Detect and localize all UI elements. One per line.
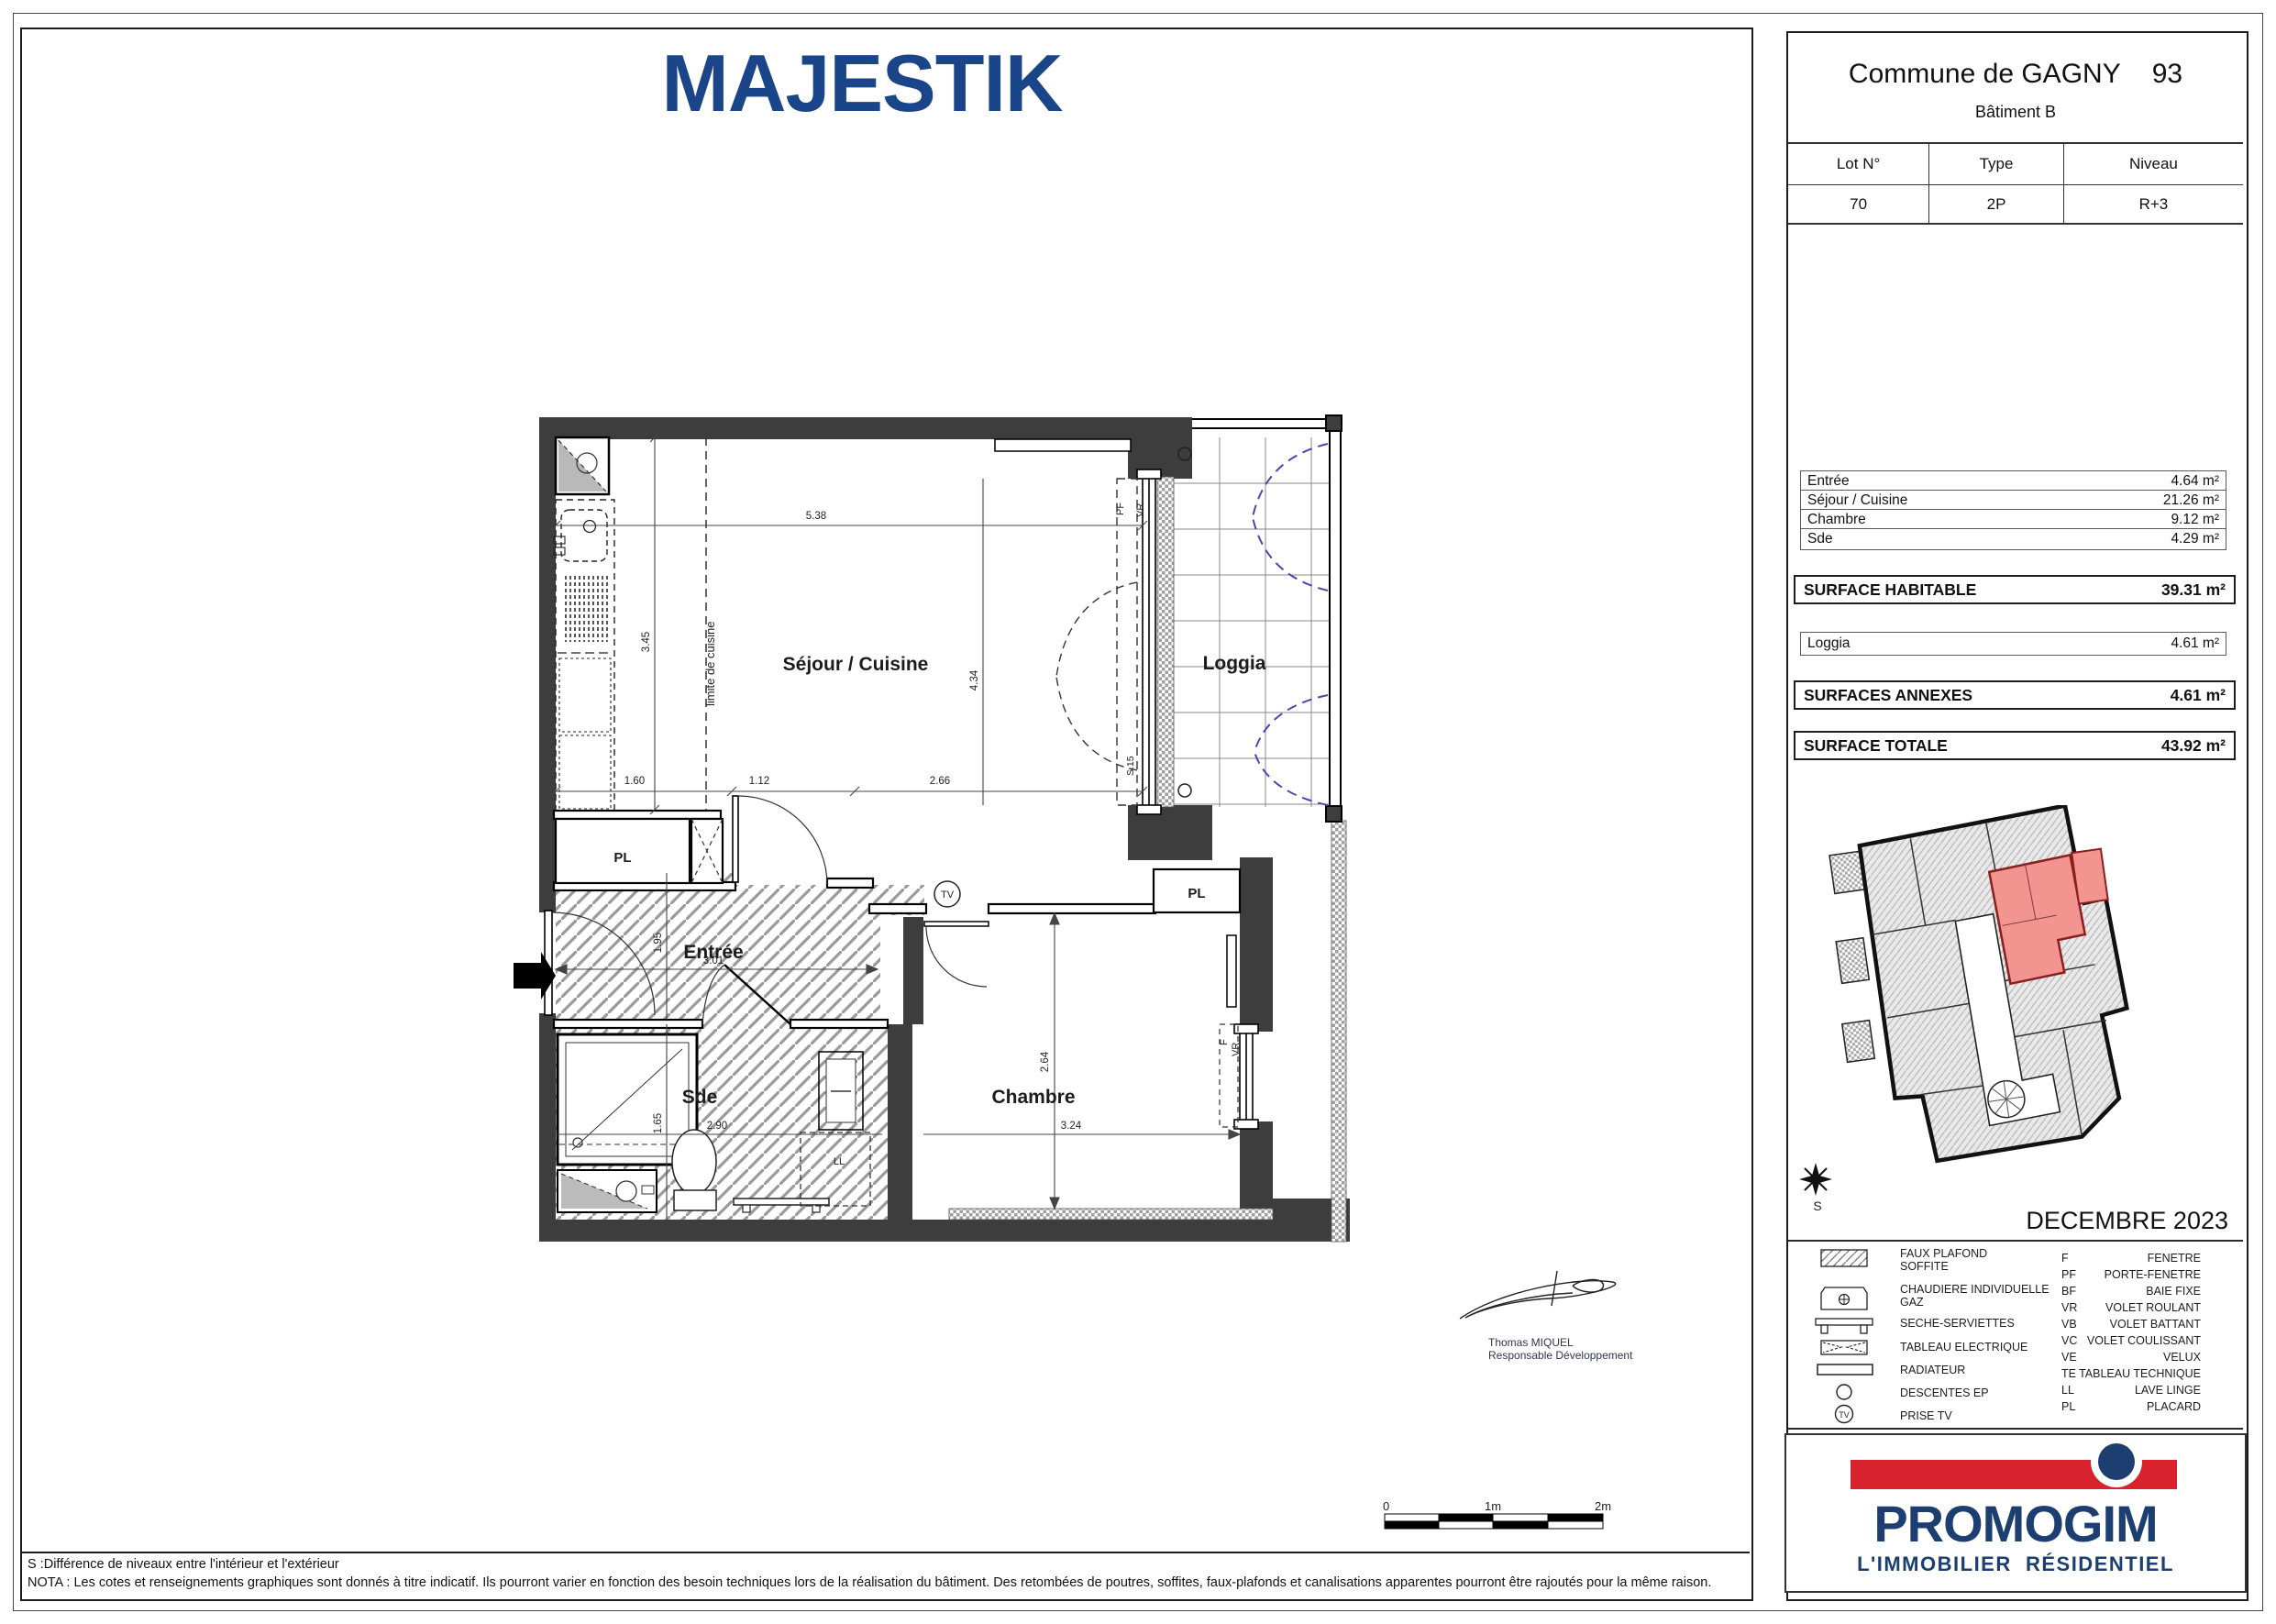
notes-box: S :Différence de niveaux entre l'intérie… xyxy=(20,1552,1750,1597)
dim-434: 4.34 xyxy=(969,669,980,690)
closet-label-pl-2: PL xyxy=(1188,886,1205,901)
room-label-entree: Entrée xyxy=(683,942,743,963)
surface-row-value: 21.26 m² xyxy=(2163,492,2226,509)
dim-538: 5.38 xyxy=(806,511,826,522)
vr-label: VR xyxy=(1135,503,1146,517)
surface-row-value: 4.64 m² xyxy=(2171,473,2226,490)
scale-segments xyxy=(1385,1514,1603,1529)
surface-row-value: 4.61 m² xyxy=(2171,635,2226,652)
surface-row-label: Séjour / Cuisine xyxy=(1801,492,1907,509)
commune-line: Commune de GAGNY 93 xyxy=(1788,59,2243,90)
radiator-sejour xyxy=(995,439,1131,451)
surfaces-annexes-box: SURFACES ANNEXES 4.61 m² xyxy=(1794,680,2236,710)
dim-112: 1.12 xyxy=(749,776,769,787)
f-label: F xyxy=(1219,1039,1230,1045)
dim-345: 3.45 xyxy=(641,632,652,652)
loggia-door-arcs xyxy=(1253,444,1328,805)
floor-plan-sheet: { "page": { "title": "MAJESTIK", "date":… xyxy=(0,0,2276,1624)
abbr-label: FENETRE xyxy=(2063,1252,2201,1265)
closet-label-pl: PL xyxy=(613,850,631,866)
kitchen-fixtures xyxy=(554,437,614,812)
svg-text:TV: TV xyxy=(941,889,955,900)
surface-row-loggia: Loggia 4.61 m² xyxy=(1800,632,2226,656)
brand-name: PROMOGIM xyxy=(1837,1494,2194,1553)
abbr-label: VOLET BATTANT xyxy=(2063,1318,2201,1331)
brand-box: PROMOGIM L'IMMOBILIER RÉSIDENTIEL xyxy=(1784,1433,2247,1593)
plan-date: DECEMBRE 2023 xyxy=(1926,1207,2228,1235)
legend-bottom-rule xyxy=(1788,1428,2243,1430)
vr-label-2: VR xyxy=(1231,1043,1242,1056)
dim-324: 3.24 xyxy=(1061,1121,1082,1132)
limite-cuisine-label: limite de cuisine xyxy=(703,622,717,707)
dim-290: 2.90 xyxy=(707,1121,727,1132)
surface-totale-value: 43.92 m² xyxy=(2161,736,2234,756)
legend-item-label: TABLEAU ELECTRIQUE xyxy=(1900,1341,2027,1353)
prise-tv-icon: TV xyxy=(934,881,960,907)
batiment: Bâtiment B xyxy=(1788,103,2243,122)
departement: 93 xyxy=(2152,59,2182,90)
legend-top-rule xyxy=(1788,1240,2243,1242)
signer-name: Thomas MIQUEL xyxy=(1488,1336,1574,1349)
tableau-electrique-legend-icon xyxy=(1821,1341,1867,1354)
surface-habitable-label: SURFACE HABITABLE xyxy=(1795,580,1976,600)
page-title: MAJESTIK xyxy=(514,37,1210,130)
lot-table: Lot N° Type Niveau 70 2P R+3 xyxy=(1788,142,2243,225)
surface-row-sde: Sde 4.29 m² xyxy=(1800,528,2226,550)
surface-row-label: Loggia xyxy=(1801,635,1851,652)
pf-label: PF xyxy=(1115,503,1126,515)
signer-role: Responsable Développement xyxy=(1488,1349,1633,1362)
surfaces-annexes-label: SURFACES ANNEXES xyxy=(1795,686,1972,705)
note-nota: NOTA : Les cotes et renseignements graph… xyxy=(28,1575,1742,1590)
legend-item-label: CHAUDIERE INDIVIDUELLE xyxy=(1900,1283,2050,1296)
lot-col-header: Lot N° xyxy=(1788,144,1929,184)
surface-row-label: Chambre xyxy=(1801,512,1866,528)
legend-item-label: FAUX PLAFOND xyxy=(1900,1247,1987,1260)
dim-160: 1.60 xyxy=(624,776,645,787)
legend-item-label: PRISE TV xyxy=(1900,1409,1952,1422)
ll-label: LL xyxy=(834,1156,845,1167)
niveau-col-header: Niveau xyxy=(2064,144,2243,184)
abbr-label: VELUX xyxy=(2063,1351,2201,1364)
door-chambre xyxy=(924,922,989,987)
loggia-floor-grid xyxy=(1174,437,1330,807)
dim-264: 2.64 xyxy=(1040,1051,1051,1072)
seche-serviettes-icon xyxy=(1816,1319,1873,1333)
commune-name: Commune de GAGNY xyxy=(1849,59,2121,90)
surface-row-value: 4.29 m² xyxy=(2171,531,2226,547)
surface-totale-box: SURFACE TOTALE 43.92 m² xyxy=(1794,731,2236,760)
brand-circle xyxy=(2098,1443,2135,1480)
legend-item-label: GAZ xyxy=(1900,1296,1924,1309)
niveau-value: R+3 xyxy=(2064,185,2243,223)
surface-habitable-value: 39.31 m² xyxy=(2161,580,2234,600)
key-plan-building xyxy=(1817,805,2145,1171)
legend-icons: TV xyxy=(1788,1245,1898,1427)
abbr-label: PORTE-FENETRE xyxy=(2063,1268,2201,1281)
legend: TV FAUX PLAFOND SOFFITE CHAUDIERE INDIVI… xyxy=(1788,1245,2243,1427)
surfaces-annexes-value: 4.61 m² xyxy=(2171,686,2234,705)
abbr-label: PLACARD xyxy=(2063,1400,2201,1413)
dim-195: 1.95 xyxy=(653,933,664,953)
surface-row-label: Sde xyxy=(1801,531,1833,547)
descentes-ep-icon xyxy=(1837,1385,1851,1399)
abbr-label: VOLET ROULANT xyxy=(2063,1301,2201,1314)
scale-2m: 2m xyxy=(1595,1499,1611,1513)
type-value: 2P xyxy=(1929,185,2064,223)
room-label-chambre: Chambre xyxy=(991,1087,1075,1108)
lot-value: 70 xyxy=(1788,185,1929,223)
abbr-label: TABLEAU TECHNIQUE xyxy=(2063,1367,2201,1380)
s15-label: S.15 xyxy=(1125,756,1136,776)
svg-text:TV: TV xyxy=(1839,1410,1850,1420)
loggia-rail xyxy=(1192,415,1342,822)
legend-item-label: RADIATEUR xyxy=(1900,1364,1965,1376)
faux-plafond-icon xyxy=(1821,1250,1867,1266)
note-s: S :Différence de niveaux entre l'intérie… xyxy=(28,1557,339,1572)
chaudiere-icon xyxy=(1821,1287,1867,1309)
signature-block: Thomas MIQUEL Responsable Développement xyxy=(1449,1265,1651,1371)
signature-scribble xyxy=(1460,1271,1616,1319)
prise-tv-legend-icon: TV xyxy=(1836,1406,1853,1423)
radiator-chambre xyxy=(1227,935,1236,1007)
surface-row-label: Entrée xyxy=(1801,473,1850,490)
room-label-sejour: Séjour / Cuisine xyxy=(783,654,929,675)
abbr-label: LAVE LINGE xyxy=(2063,1384,2201,1397)
dim-266: 2.66 xyxy=(930,776,950,787)
room-label-sde: Sde xyxy=(682,1087,718,1108)
key-plan: S xyxy=(1788,805,2248,1220)
abbr-label: VOLET COULISSANT xyxy=(2063,1334,2201,1347)
surface-habitable-box: SURFACE HABITABLE 39.31 m² xyxy=(1794,575,2236,604)
header-card: Commune de GAGNY 93 Bâtiment B xyxy=(1788,33,2243,122)
scale-bar: 0 1m 2m xyxy=(1376,1497,1623,1539)
scale-1m: 1m xyxy=(1485,1499,1501,1513)
legend-item-label: SECHE-SERVIETTES xyxy=(1900,1317,2015,1330)
descente-ep-icon xyxy=(1178,784,1191,797)
door-entree-sejour xyxy=(733,796,827,885)
type-col-header: Type xyxy=(1929,144,2064,184)
compass-icon: S xyxy=(1799,1163,1832,1213)
abbr-label: BAIE FIXE xyxy=(2063,1285,2201,1298)
dim-165: 1.65 xyxy=(653,1113,664,1133)
compass-label: S xyxy=(1813,1199,1821,1213)
radiateur-icon xyxy=(1817,1364,1873,1375)
legend-item-label: DESCENTES EP xyxy=(1900,1386,1989,1399)
brand-tagline: L'IMMOBILIER RÉSIDENTIEL xyxy=(1837,1552,2194,1576)
surface-totale-label: SURFACE TOTALE xyxy=(1795,736,1948,756)
room-label-loggia: Loggia xyxy=(1203,653,1266,674)
scale-0: 0 xyxy=(1383,1499,1389,1513)
floor-plan-drawing: limite de cuisine xyxy=(514,394,1385,1265)
surface-row-value: 9.12 m² xyxy=(2171,512,2226,528)
legend-item-label: SOFFITE xyxy=(1900,1260,1949,1273)
